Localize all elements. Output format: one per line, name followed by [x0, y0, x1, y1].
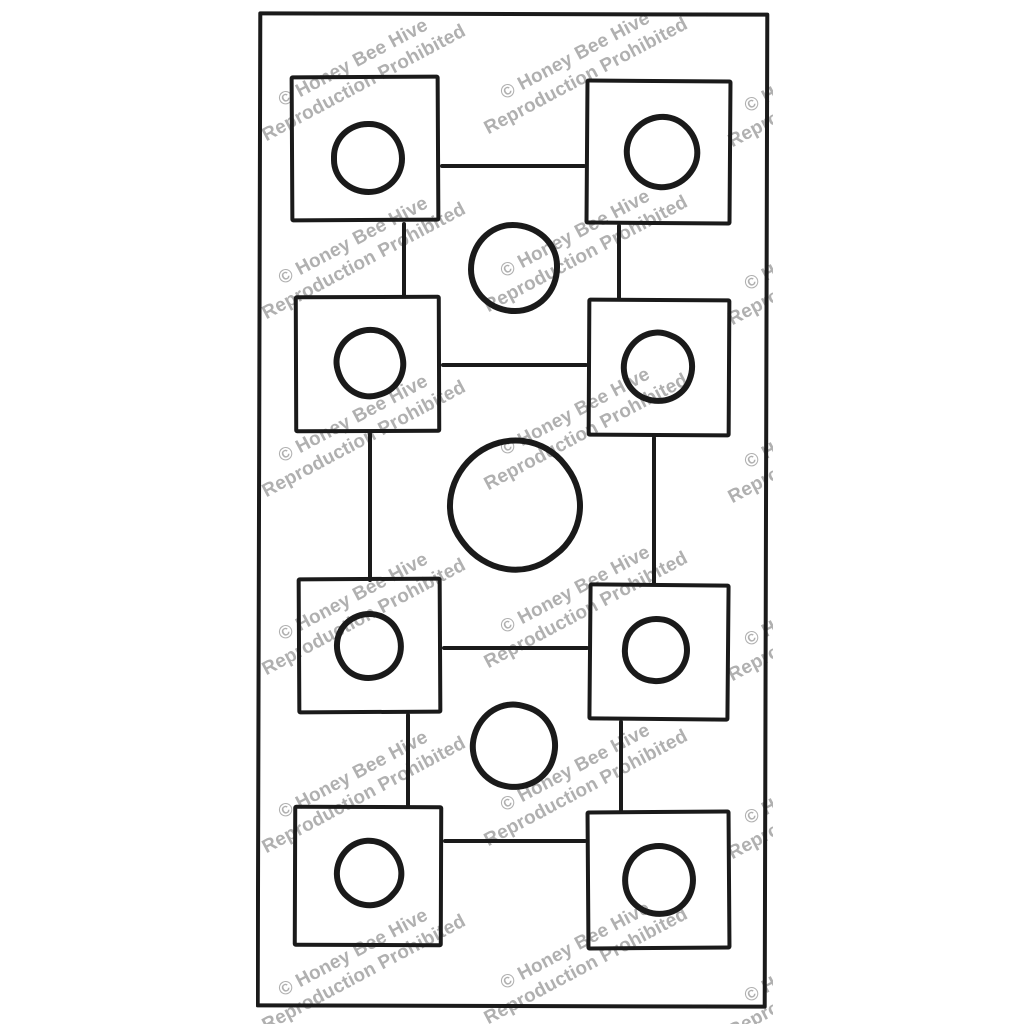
connector-right-3-4	[619, 720, 623, 812]
connector-row4-horizontal	[443, 839, 587, 843]
circle-in-square-row1-left	[331, 121, 405, 195]
connector-right-1-2	[617, 224, 621, 300]
connector-row3-horizontal	[442, 646, 589, 650]
connector-left-2-3	[368, 432, 372, 582]
connector-row1-horizontal	[440, 164, 586, 168]
pattern-area: © Honey Bee HiveReproduction Prohibited©…	[256, 8, 773, 1024]
connector-left-1-2	[402, 222, 406, 298]
scanned-pattern-page: © Honey Bee HiveReproduction Prohibited©…	[0, 0, 1024, 1024]
ink-layer	[256, 8, 773, 1024]
connector-right-2-3	[652, 436, 656, 586]
connector-left-3-4	[406, 713, 410, 808]
connector-row2-horizontal	[441, 363, 588, 367]
circle-center-top	[468, 222, 560, 314]
